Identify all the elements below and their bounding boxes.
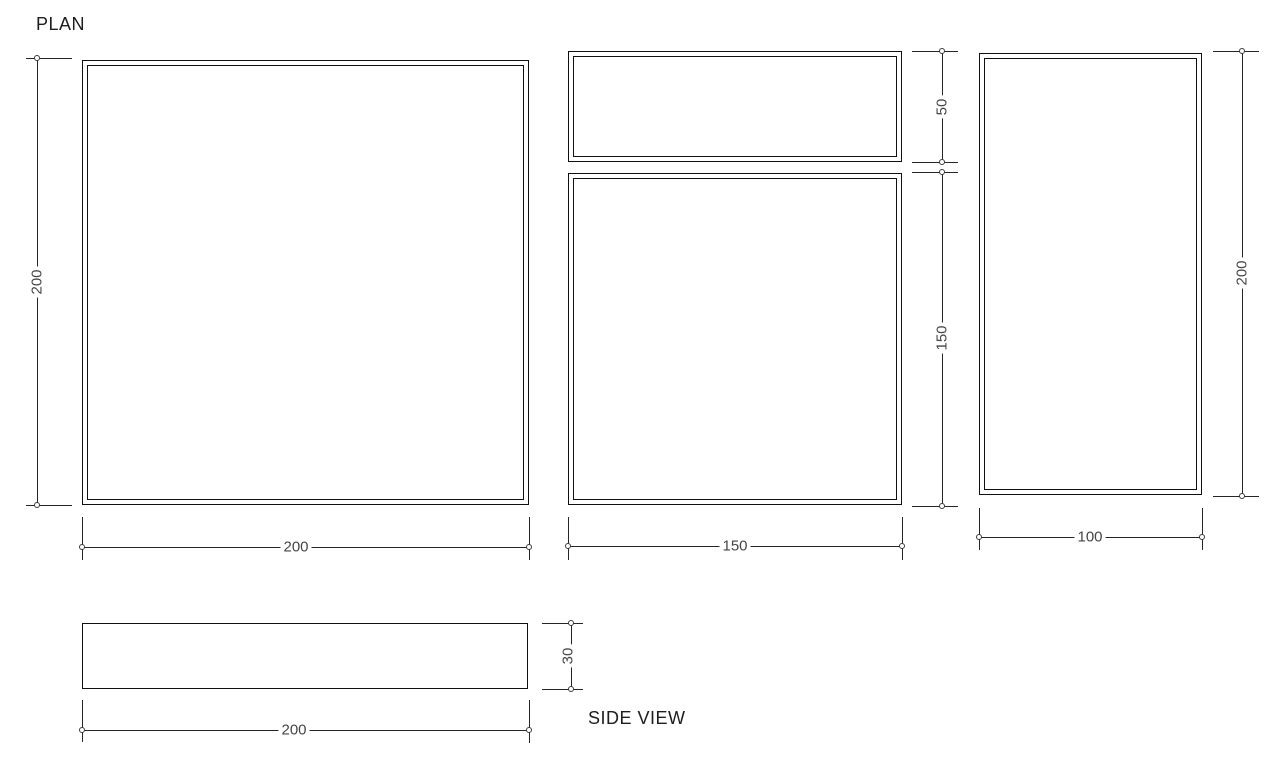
- dim-mid-top-height-label: 50: [934, 96, 951, 119]
- dim-mid-width-label: 150: [719, 538, 750, 555]
- dim-side-width-marker-right: [526, 727, 532, 733]
- right-rect-inner-outline: [984, 58, 1197, 490]
- dim-plan-height-label: 200: [29, 266, 46, 297]
- dim-side-width-label: 200: [278, 722, 309, 739]
- dim-side-thickness-marker-bottom: [568, 686, 574, 692]
- side-view-rect-outline: [82, 623, 528, 689]
- dim-mid-width-marker-left: [565, 543, 571, 549]
- plan-view-title: PLAN: [36, 15, 85, 33]
- plan-square-inner-outline: [87, 65, 524, 500]
- dim-side-thickness-marker-top: [568, 620, 574, 626]
- dim-right-height-label: 200: [1234, 257, 1251, 288]
- dim-side-thickness-ext-top: [542, 623, 583, 624]
- dim-right-width-marker-right: [1199, 534, 1205, 540]
- dim-right-width-label: 100: [1074, 529, 1105, 546]
- dim-plan-height-ext-bottom: [26, 505, 72, 506]
- dim-mid-top-height-marker-top: [939, 48, 945, 54]
- dim-mid-top-height-ext-bottom: [912, 162, 958, 163]
- side-view-title: SIDE VIEW: [588, 709, 686, 727]
- dim-plan-height-marker-bottom: [34, 502, 40, 508]
- dim-right-height-ext-bottom: [1213, 496, 1259, 497]
- dim-mid-bottom-height-ext-bottom: [912, 506, 958, 507]
- dim-plan-width-ext-right: [529, 517, 530, 560]
- dim-mid-width-ext-left: [568, 517, 569, 560]
- dim-side-thickness-label: 30: [560, 645, 577, 668]
- dim-plan-width-marker-right: [526, 544, 532, 550]
- dim-mid-bottom-height-marker-top: [939, 169, 945, 175]
- mid-top-rect-inner-outline: [573, 56, 897, 157]
- dim-mid-width-ext-right: [902, 517, 903, 560]
- dim-plan-width-ext-left: [82, 517, 83, 560]
- dim-right-height-marker-top: [1239, 48, 1245, 54]
- dim-plan-height-ext-top: [26, 58, 72, 59]
- dim-right-width-ext-right: [1202, 508, 1203, 550]
- dim-side-width-marker-left: [79, 727, 85, 733]
- dim-mid-width-marker-right: [899, 543, 905, 549]
- dim-right-height-marker-bottom: [1239, 493, 1245, 499]
- dim-right-width-marker-left: [976, 534, 982, 540]
- dim-plan-height-marker-top: [34, 55, 40, 61]
- dim-side-thickness-ext-bottom: [542, 689, 583, 690]
- dim-plan-width-label: 200: [280, 539, 311, 556]
- dim-mid-top-height-ext-top: [912, 51, 958, 52]
- drawing-canvas: PLAN SIDE VIEW 200 200 50 150 150: [0, 0, 1287, 757]
- dim-right-width-ext-left: [979, 508, 980, 550]
- dim-plan-width-marker-left: [79, 544, 85, 550]
- dim-mid-top-height-marker-bottom: [939, 159, 945, 165]
- dim-mid-bottom-height-ext-top: [912, 172, 958, 173]
- dim-mid-bottom-height-marker-bottom: [939, 503, 945, 509]
- dim-right-height-ext-top: [1213, 51, 1259, 52]
- dim-side-width-ext-right: [529, 700, 530, 743]
- mid-bottom-rect-inner-outline: [573, 178, 897, 500]
- dim-mid-bottom-height-label: 150: [934, 322, 951, 353]
- dim-side-width-ext-left: [82, 700, 83, 742]
